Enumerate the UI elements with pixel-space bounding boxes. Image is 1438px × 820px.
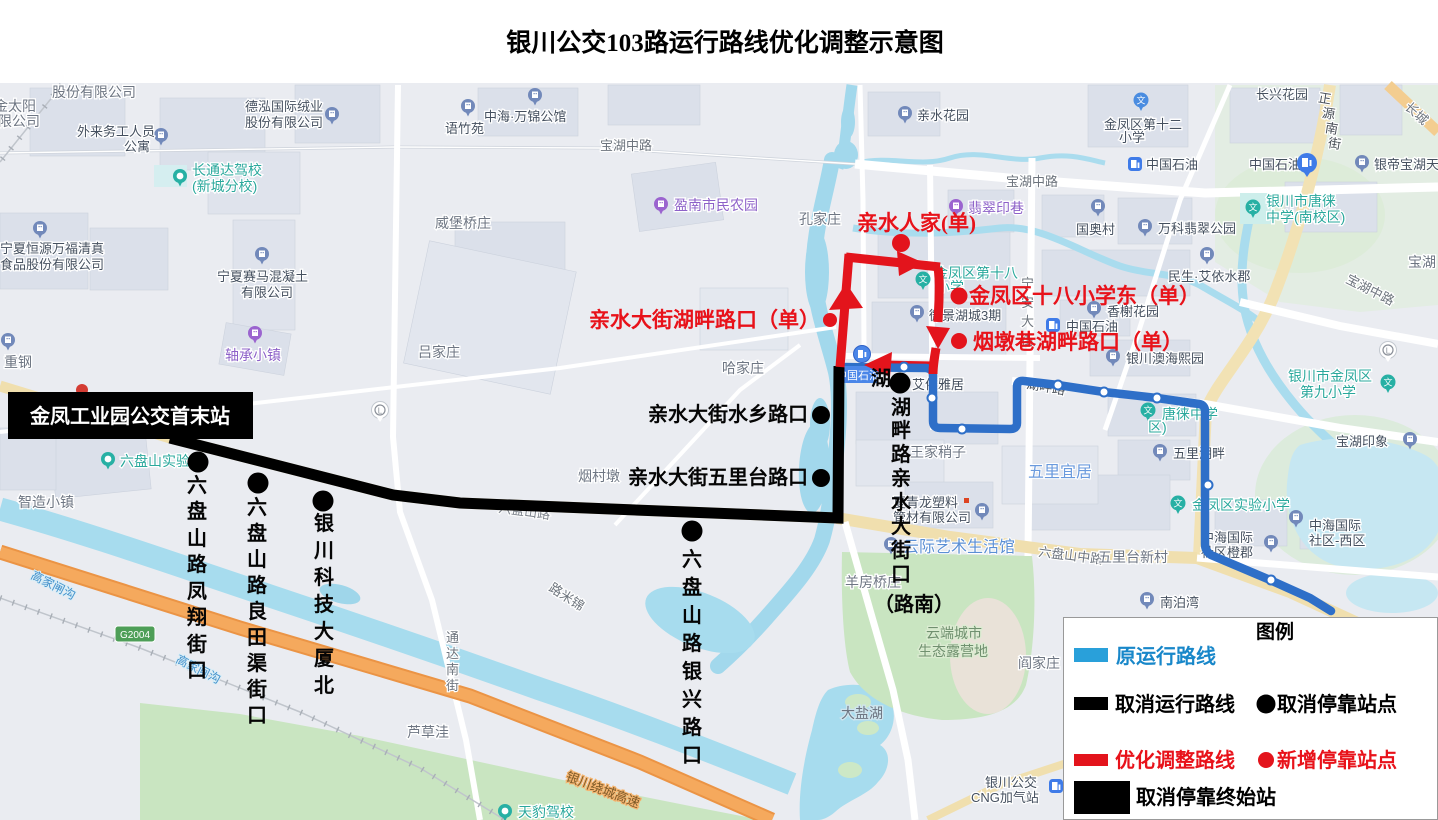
svg-text:阎家庄: 阎家庄: [1018, 655, 1060, 671]
svg-text:宝湖中路: 宝湖中路: [1006, 174, 1058, 189]
svg-text:金凤工业园公交首末站: 金凤工业园公交首末站: [29, 404, 230, 428]
svg-text:银川公交103路运行路线优化调整示意图: 银川公交103路运行路线优化调整示意图: [506, 28, 944, 57]
svg-text:银川市唐徕: 银川市唐徕: [1266, 193, 1336, 209]
svg-text:六盘山路良田渠街口: 六盘山路良田渠街口: [246, 496, 268, 727]
svg-text:宝湖印象: 宝湖印象: [1336, 434, 1388, 449]
svg-text:CNG加气站: CNG加气站: [971, 790, 1039, 805]
svg-text:天豹驾校: 天豹驾校: [518, 804, 574, 820]
svg-text:源: 源: [1321, 105, 1336, 122]
svg-text:重钢: 重钢: [4, 354, 32, 370]
svg-text:街: 街: [446, 678, 459, 693]
svg-text:民生·艾依水郡: 民生·艾依水郡: [1168, 269, 1250, 284]
svg-text:亲水大街五里台路口: 亲水大街五里台路口: [628, 465, 808, 489]
svg-text:南: 南: [446, 662, 459, 677]
svg-text:金太阳: 金太阳: [0, 98, 36, 114]
svg-text:亲水花园: 亲水花园: [917, 108, 969, 123]
svg-text:中海国际: 中海国际: [1309, 518, 1361, 533]
svg-text:(新城分校): (新城分校): [192, 178, 257, 194]
svg-text:（路南）: （路南）: [874, 592, 954, 616]
svg-text:股份有限公司: 股份有限公司: [245, 115, 323, 130]
svg-text:宝湖: 宝湖: [1408, 254, 1436, 270]
svg-text:南: 南: [1324, 120, 1339, 137]
svg-text:翡翠印巷: 翡翠印巷: [968, 200, 1024, 216]
svg-text:达: 达: [446, 646, 459, 661]
svg-text:大: 大: [1021, 314, 1034, 329]
svg-text:德泓国际绒业: 德泓国际绒业: [245, 99, 323, 114]
svg-text:亲水人家(单): 亲水人家(单): [857, 211, 976, 235]
svg-text:街: 街: [1327, 135, 1342, 152]
svg-text:南泊湾: 南泊湾: [1160, 595, 1199, 610]
svg-text:哈家庄: 哈家庄: [722, 360, 764, 376]
svg-text:五里台新村: 五里台新村: [1098, 549, 1168, 565]
svg-text:取消停靠终始站: 取消停靠终始站: [1136, 785, 1276, 809]
svg-text:中海·万锦公馆: 中海·万锦公馆: [484, 109, 566, 124]
svg-text:亲水大街水乡路口: 亲水大街水乡路口: [648, 402, 808, 426]
svg-text:银帝宝湖天: 银帝宝湖天: [1374, 157, 1438, 172]
svg-text:云端城市: 云端城市: [926, 625, 982, 641]
svg-text:外来务工人员: 外来务工人员: [77, 124, 155, 139]
svg-text:取消停靠站点: 取消停靠站点: [1277, 692, 1397, 716]
svg-text:原运行路线: 原运行路线: [1116, 644, 1216, 668]
svg-text:烟墩巷湖畔路口（单）: 烟墩巷湖畔路口（单）: [973, 330, 1183, 354]
svg-text:湖: 湖: [871, 367, 891, 390]
svg-text:云际艺术生活馆: 云际艺术生活馆: [903, 538, 1015, 556]
svg-text:图例: 图例: [1256, 620, 1294, 643]
svg-text:盈南市民农园: 盈南市民农园: [674, 197, 758, 213]
svg-text:亲水大街湖畔路口（单）: 亲水大街湖畔路口（单）: [589, 308, 820, 332]
svg-text:王家稍子: 王家稍子: [910, 444, 966, 460]
svg-text:社区-西区: 社区-西区: [1309, 533, 1365, 548]
svg-text:中国石油: 中国石油: [1146, 157, 1198, 172]
svg-text:万科翡翠公园: 万科翡翠公园: [1158, 221, 1236, 236]
svg-text:G2004: G2004: [120, 630, 150, 641]
svg-text:芦草洼: 芦草洼: [407, 724, 449, 740]
svg-text:国奥村: 国奥村: [1076, 222, 1115, 237]
svg-text:长兴花园: 长兴花园: [1256, 87, 1308, 102]
svg-text:中学(南校区): 中学(南校区): [1266, 209, 1345, 225]
svg-text:限公司: 限公司: [0, 113, 40, 129]
svg-text:语竹苑: 语竹苑: [445, 121, 484, 136]
svg-text:区): 区): [1148, 419, 1167, 435]
svg-text:孔家庄: 孔家庄: [799, 211, 841, 227]
svg-text:智造小镇: 智造小镇: [18, 494, 74, 510]
svg-text:大盐湖: 大盐湖: [841, 705, 883, 721]
svg-text:艾依雅居: 艾依雅居: [912, 377, 964, 392]
svg-text:吕家庄: 吕家庄: [418, 344, 460, 360]
svg-text:宝湖中路: 宝湖中路: [600, 138, 652, 153]
svg-text:威堡桥庄: 威堡桥庄: [435, 215, 491, 231]
svg-text:五里宜居: 五里宜居: [1028, 463, 1092, 481]
svg-text:银川公交: 银川公交: [985, 775, 1037, 790]
svg-text:股份有限公司: 股份有限公司: [52, 84, 136, 100]
svg-text:有限公司: 有限公司: [241, 285, 293, 300]
svg-text:长通达驾校: 长通达驾校: [192, 162, 262, 178]
svg-text:优化调整路线: 优化调整路线: [1115, 748, 1235, 772]
svg-text:轴承小镇: 轴承小镇: [225, 347, 281, 363]
svg-text:通: 通: [446, 630, 459, 645]
svg-text:取消运行路线: 取消运行路线: [1115, 692, 1235, 716]
svg-text:唐徕中学: 唐徕中学: [1162, 406, 1218, 422]
svg-text:宁夏恒源万福清真: 宁夏恒源万福清真: [0, 241, 104, 256]
svg-text:生态露营地: 生态露营地: [918, 643, 988, 659]
svg-text:第九小学: 第九小学: [1300, 384, 1356, 400]
svg-text:中国石油: 中国石油: [1249, 157, 1301, 172]
svg-text:公寓: 公寓: [124, 139, 150, 154]
svg-text:食品股份有限公司: 食品股份有限公司: [0, 257, 104, 272]
svg-text:正: 正: [1317, 90, 1332, 107]
svg-text:小学: 小学: [1119, 130, 1145, 145]
svg-text:金凤区十八小学东（单）: 金凤区十八小学东（单）: [968, 284, 1200, 308]
svg-text:宁夏赛马混凝土: 宁夏赛马混凝土: [217, 269, 308, 284]
svg-text:五里湖畔: 五里湖畔: [1173, 446, 1225, 461]
svg-text:银川市金凤区: 银川市金凤区: [1288, 368, 1372, 384]
svg-text:烟村墩: 烟村墩: [578, 468, 620, 484]
svg-text:新增停靠站点: 新增停靠站点: [1277, 748, 1397, 772]
